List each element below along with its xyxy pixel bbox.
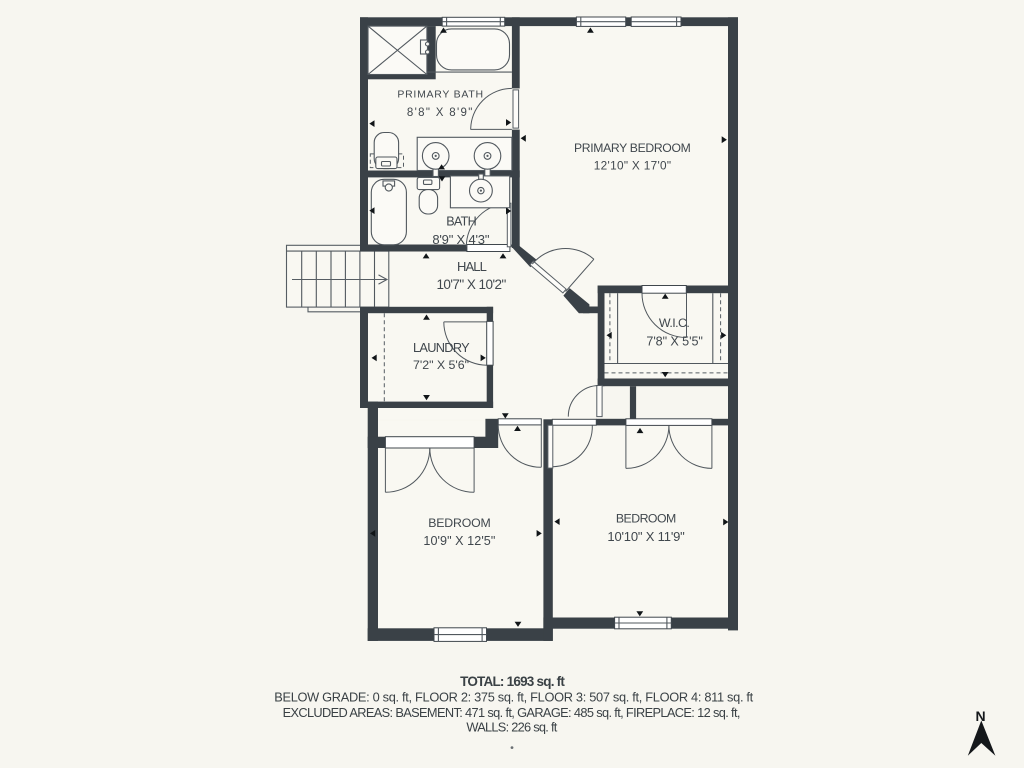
svg-text:PRIMARY BATH: PRIMARY BATH	[397, 88, 483, 100]
svg-text:BELOW GRADE: 0 sq. ft, FLOOR 2: BELOW GRADE: 0 sq. ft, FLOOR 2: 375 sq. …	[274, 690, 753, 705]
svg-text:8'9" X 4'3": 8'9" X 4'3"	[432, 232, 489, 247]
svg-text:BEDROOM: BEDROOM	[616, 511, 676, 525]
svg-text:BATH: BATH	[446, 215, 476, 229]
svg-text:PRIMARY BEDROOM: PRIMARY BEDROOM	[574, 141, 691, 155]
svg-text:7'8" X 5'5": 7'8" X 5'5"	[646, 335, 702, 349]
svg-text:LAUNDRY: LAUNDRY	[413, 340, 470, 355]
svg-text:12'10" X 17'0": 12'10" X 17'0"	[594, 158, 672, 172]
svg-text:7'2" X 5'6": 7'2" X 5'6"	[413, 358, 469, 372]
svg-text:10'10" X 11'9": 10'10" X 11'9"	[607, 529, 685, 544]
svg-text:BEDROOM: BEDROOM	[428, 516, 490, 530]
svg-text:TOTAL: 1693 sq. ft: TOTAL: 1693 sq. ft	[460, 674, 565, 689]
svg-text:10'7" X 10'2": 10'7" X 10'2"	[436, 277, 506, 292]
svg-text:10'9" X 12'5": 10'9" X 12'5"	[423, 534, 495, 548]
svg-text:EXCLUDED AREAS: BASEMENT: 471: EXCLUDED AREAS: BASEMENT: 471 sq. ft, GA…	[283, 705, 740, 720]
svg-text:8'8" X 8'9": 8'8" X 8'9"	[407, 107, 474, 119]
svg-text:N: N	[976, 708, 986, 724]
svg-text:HALL: HALL	[457, 259, 487, 274]
svg-text:WALLS: 226 sq. ft: WALLS: 226 sq. ft	[466, 720, 557, 735]
svg-text:W.I.C.: W.I.C.	[659, 316, 690, 330]
